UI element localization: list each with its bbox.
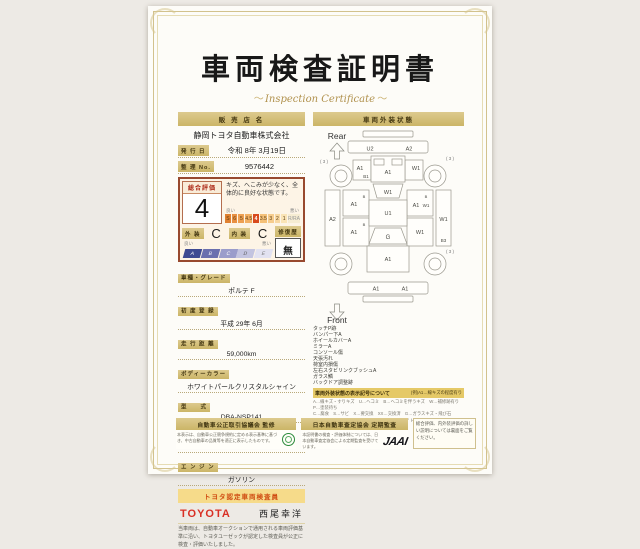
damage-label: B3 <box>441 238 447 243</box>
scale-cell: 5 <box>238 214 244 223</box>
detail-row-engine: エ ン ジ ン ガソリン <box>178 455 305 486</box>
fair-trade-council-body: 本表示は、自動車公正競争規約に定める表示基準に基づき、中古自動車の品質等を適正に… <box>176 430 296 446</box>
dealer-header: 販 売 店 名 <box>178 112 305 126</box>
scale-cell-repair: R/RA <box>288 214 300 223</box>
rear-bumper <box>348 141 428 153</box>
exterior-label: 外 装 <box>182 228 204 239</box>
damage-label: A1 <box>351 202 358 208</box>
damage-label: U2 <box>366 147 373 153</box>
overall-evaluation-box: 総合評価 4 キズ、へこみが少なく、全体的に良好な状態です。 良い 悪い S 6… <box>178 177 305 262</box>
scale-cell: 4.5 <box>245 214 252 223</box>
grade-scale-endpoint-labels: 良い 悪い <box>182 241 273 247</box>
detail-value: ホワイトパールクリスタルシャイン <box>178 381 305 391</box>
damage-label: A1 <box>351 230 358 236</box>
damage-label: W1 <box>416 230 424 236</box>
wheel-hub <box>335 258 347 270</box>
scale-cell: 1 <box>281 214 287 223</box>
detail-label: 型 式 <box>178 403 210 412</box>
jaai-logo: JAAI <box>382 436 408 448</box>
repair-history-area: 修復歴 無 <box>275 226 301 258</box>
trunk-detail <box>374 159 384 165</box>
front-plate <box>363 296 413 302</box>
repair-history-value: 無 <box>275 238 301 258</box>
inspection-note: 当車両は、自動車オークションで通用される車両評価基準に沿い、トヨタユーゼックが認… <box>178 523 305 549</box>
inspector-row: TOYOTA 西尾幸洋 <box>178 503 305 523</box>
scale-bad-label: 悪い <box>262 241 271 247</box>
overall-score-cell: 総合評価 4 <box>182 181 222 224</box>
damage-label: ( 3 ) <box>446 249 455 254</box>
detail-value: ガソリン <box>178 474 305 484</box>
scale-good-label: 良い <box>184 241 193 247</box>
interior-label: 内 装 <box>229 228 251 239</box>
repair-history-label: 修復歴 <box>275 226 301 237</box>
scale-cell: 3.5 <box>260 214 267 223</box>
grade-row: 外 装 C 内 装 C <box>182 226 273 241</box>
corner-ornament <box>460 8 490 38</box>
jaai-header: 日本自動車査定協会 定期監査 <box>301 418 408 430</box>
damage-label: B1 <box>363 174 369 179</box>
ref-no-label: 整 理 No. <box>178 161 214 172</box>
ref-no-row: 整 理 No. 9576442 <box>178 160 305 174</box>
jaai-box: 日本自動車査定協会 定期監査 本証明書の検査・評価体制については、日本自動車査定… <box>301 418 408 449</box>
flourish: 〜 <box>254 94 265 105</box>
evaluation-top: 総合評価 4 キズ、へこみが少なく、全体的に良好な状態です。 良い 悪い S 6… <box>182 181 301 224</box>
grade-cell: D <box>236 249 255 258</box>
inspector-name: 西尾幸洋 <box>259 507 303 520</box>
legend-example: (例)A1…線キズの程度有り <box>411 390 462 397</box>
scale-cell-highlighted: 4 <box>253 214 259 223</box>
jaai-body: 本証明書の検査・評価体制については、日本自動車査定協会による定期監査を受けていま… <box>301 430 408 449</box>
corner-ornament <box>150 8 180 38</box>
rear-plate <box>363 131 413 137</box>
grade-cell: A <box>183 249 202 258</box>
dealer-name: 静岡トヨタ自動車株式会社 <box>178 130 305 141</box>
overall-score-value: 4 <box>183 194 221 223</box>
exterior-condition-column: 車両外装状態 <box>313 112 464 549</box>
detail-label: 車種・グレード <box>178 274 230 283</box>
damage-label: A1 <box>373 287 380 293</box>
grade-area: 外 装 C 内 装 C 良い 悪い A B C <box>182 226 273 258</box>
page-subtitle-text: Inspection Certificate <box>265 94 375 105</box>
grade-cell: C <box>218 249 237 258</box>
legend-line: A…線キズ・すりキズ U…ヘコミ B…ヘコミを伴うキズ W…補修跡有り P…塗装… <box>313 399 464 411</box>
legend-title: 車両外装状態の表示記号について <box>315 390 390 397</box>
back-side-note: 総合評価、内外装評価の詳しい説明については裏面をご覧ください。 <box>413 418 476 449</box>
page-subtitle: 〜 Inspection Certificate 〜 <box>148 90 492 105</box>
jaai-note: 本証明書の検査・評価体制については、日本自動車査定協会による定期監査を受けていま… <box>302 432 379 449</box>
flourish: 〜 <box>375 94 386 105</box>
page-title: 車両検査証明書 <box>148 46 492 88</box>
detail-row-model: 車種・グレード ポルテ F <box>178 266 305 297</box>
damage-label: B <box>363 222 366 227</box>
front-direction-label: Front <box>327 315 347 324</box>
evaluation-comment: キズ、へこみが少なく、全体的に良好な状態です。 <box>224 181 301 208</box>
content-columns: 販 売 店 名 静岡トヨタ自動車株式会社 発 行 日 令和 8年 3月19日 整… <box>178 112 464 549</box>
symbol-legend-header: 車両外装状態の表示記号について (例)A1…線キズの程度有り <box>313 388 464 398</box>
fair-trade-council-box: 自動車公正取引協議会 監修 本表示は、自動車公正競争規約に定める表示基準に基づき… <box>176 418 296 449</box>
interior-grade: C <box>252 226 273 241</box>
wheel-hub <box>429 170 441 182</box>
detail-label: エ ン ジ ン <box>178 463 218 472</box>
damage-label: A1 <box>385 170 392 176</box>
detail-value: 平成 29年 6月 <box>178 318 305 328</box>
rear-direction-label: Rear <box>328 131 347 141</box>
damage-label: ( 3 ) <box>446 156 455 161</box>
detail-value: ポルテ F <box>178 285 305 295</box>
damage-label: A2 <box>329 217 336 223</box>
damage-label: A2 <box>406 147 413 153</box>
damage-label: W1 <box>412 166 420 172</box>
toyota-logo: TOYOTA <box>180 508 231 520</box>
council-emblem-icon <box>282 433 295 446</box>
legend-line: C…腐食 S…サビ X…要交換 XX…交換済 G…ガラスキズ・飛び石 <box>313 411 464 417</box>
damage-label: U1 <box>384 211 391 217</box>
scale-cell: 6 <box>232 214 238 223</box>
certified-inspector-badge: トヨタ認定車両検査員 <box>178 489 305 503</box>
damage-checklist: タッチP跡 バンパー下A ホイールカバーA ミラーA コンソール傷 天張汚れ 荷… <box>313 326 464 386</box>
detail-label: 走 行 距 離 <box>178 340 218 349</box>
trunk-detail <box>392 159 402 165</box>
detail-row-body-color: ボディーカラー ホワイトパールクリスタルシャイン <box>178 362 305 393</box>
damage-label: A1 <box>402 287 409 293</box>
car-damage-diagram: Rear U2 A2 ( 3 ) ( 3 ) A1 B1 W1 A2 A1 B … <box>313 126 464 324</box>
vehicle-info-column: 販 売 店 名 静岡トヨタ自動車株式会社 発 行 日 令和 8年 3月19日 整… <box>178 112 305 549</box>
damage-label: G <box>386 235 391 241</box>
damage-label: ( 3 ) <box>320 159 329 164</box>
exterior-condition-header: 車両外装状態 <box>313 112 464 126</box>
wheel-hub <box>335 170 347 182</box>
evaluation-comment-area: キズ、へこみが少なく、全体的に良好な状態です。 良い 悪い S 6 5 4.5 … <box>224 181 301 224</box>
evaluation-bottom: 外 装 C 内 装 C 良い 悪い A B C <box>182 226 301 258</box>
vehicle-details: 車種・グレード ポルテ F 初 度 登 録 平成 29年 6月 走 行 距 離 … <box>178 266 305 486</box>
damage-label: W1 <box>423 203 430 208</box>
detail-label: 初 度 登 録 <box>178 307 218 316</box>
damage-label: B <box>363 194 366 199</box>
detail-row-mileage: 走 行 距 離 59,000km <box>178 332 305 360</box>
car-diagram-svg: Rear U2 A2 ( 3 ) ( 3 ) A1 B1 W1 A2 A1 B … <box>313 126 464 324</box>
damage-label: A1 <box>385 257 392 263</box>
damage-label: W1 <box>439 217 447 223</box>
detail-value: 59,000km <box>178 351 305 358</box>
damage-label: B <box>425 194 428 199</box>
grade-scale: A B C D E <box>182 249 273 258</box>
issue-date-row: 発 行 日 令和 8年 3月19日 <box>178 144 305 158</box>
fair-trade-council-note: 本表示は、自動車公正競争規約に定める表示基準に基づき、中古自動車の品質等を適正に… <box>177 432 279 444</box>
detail-label: ボディーカラー <box>178 370 229 379</box>
certificate-page: 車両検査証明書 〜 Inspection Certificate 〜 販 売 店… <box>148 6 492 474</box>
damage-label: A1 <box>357 166 364 172</box>
overall-score-scale: S 6 5 4.5 4 3.5 3 2 1 R/RA <box>224 214 301 224</box>
front-bumper <box>348 282 428 294</box>
ref-no-value: 9576442 <box>214 162 305 171</box>
scale-cell: 3 <box>268 214 274 223</box>
damage-label: W1 <box>384 190 392 196</box>
scale-cell: S <box>225 214 231 223</box>
certificate-footer: 自動車公正取引協議会 監修 本表示は、自動車公正競争規約に定める表示基準に基づき… <box>176 418 476 449</box>
grade-cell: B <box>201 249 220 258</box>
scale-cell: 2 <box>275 214 281 223</box>
rear-arrow-icon <box>330 143 344 159</box>
damage-label: A1 <box>413 203 420 209</box>
issue-date-label: 発 行 日 <box>178 145 209 156</box>
exterior-grade: C <box>206 226 227 241</box>
grade-cell: E <box>254 249 273 258</box>
wheel-hub <box>429 258 441 270</box>
fair-trade-council-header: 自動車公正取引協議会 監修 <box>176 418 296 430</box>
issue-date-value: 令和 8年 3月19日 <box>209 145 305 156</box>
detail-row-first-registration: 初 度 登 録 平成 29年 6月 <box>178 299 305 330</box>
checklist-item: バックドア調整跡 <box>313 380 464 386</box>
